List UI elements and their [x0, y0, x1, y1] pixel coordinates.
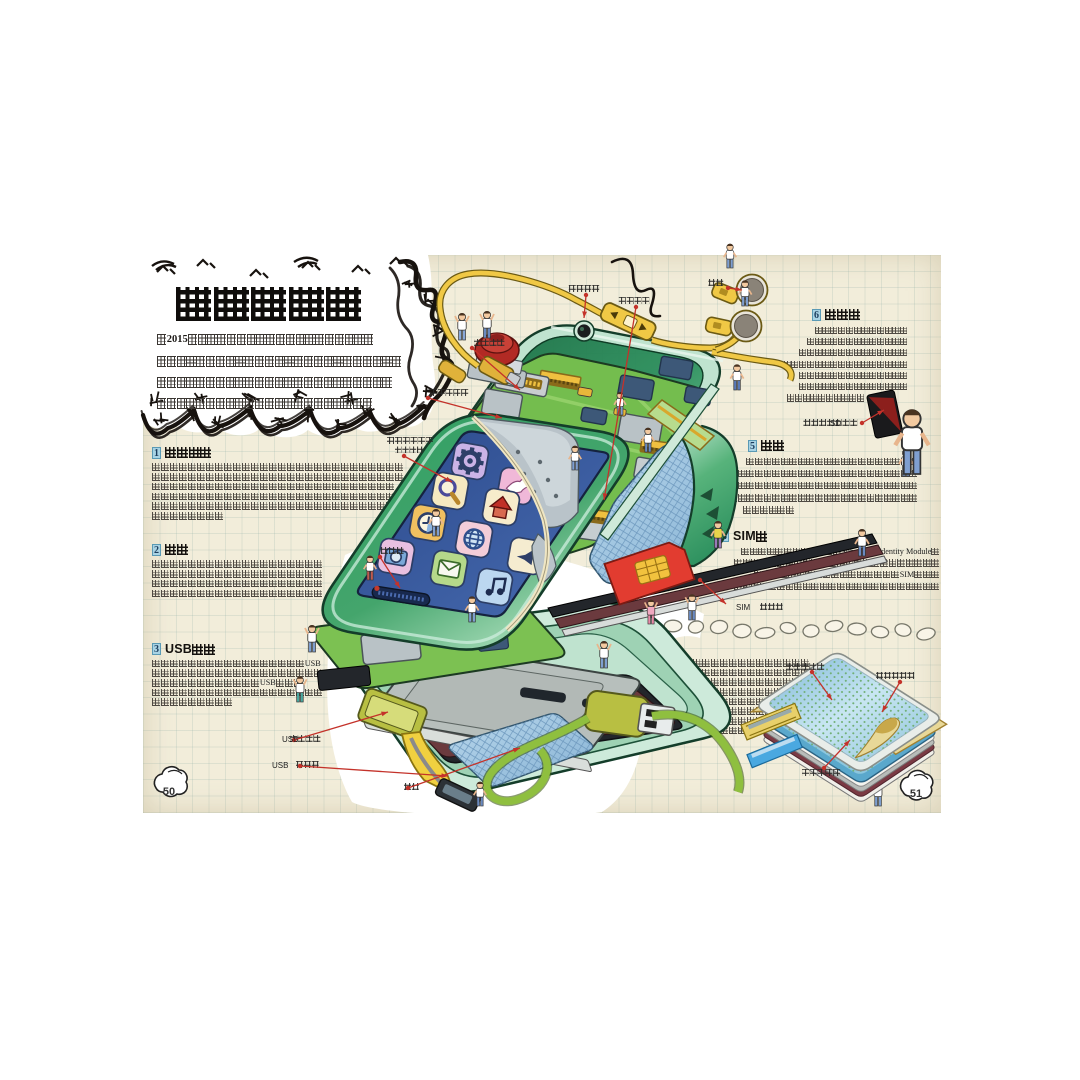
svg-text:51: 51	[910, 788, 922, 800]
svg-text:USB: USB	[282, 735, 298, 744]
svg-text:SIM: SIM	[736, 603, 751, 612]
svg-text:SD: SD	[830, 419, 841, 428]
svg-text:USB: USB	[272, 761, 288, 770]
svg-text:50: 50	[163, 786, 175, 798]
